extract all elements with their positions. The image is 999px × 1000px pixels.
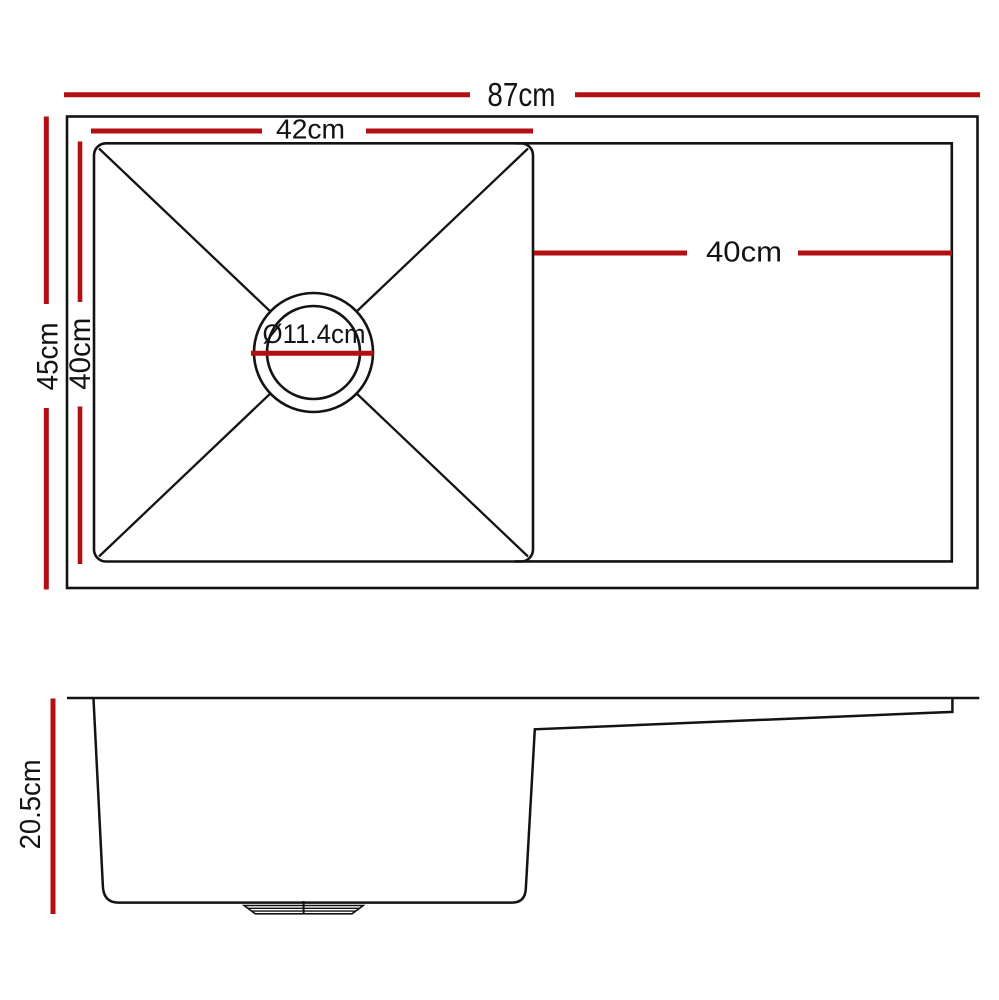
svg-text:40cm: 40cm [706,237,782,269]
svg-text:Ø11.4cm: Ø11.4cm [263,319,366,349]
svg-text:20.5cm: 20.5cm [15,759,47,849]
svg-text:42cm: 42cm [276,113,345,144]
svg-text:45cm: 45cm [32,322,65,390]
svg-text:87cm: 87cm [487,76,555,113]
svg-text:40cm: 40cm [64,318,97,390]
